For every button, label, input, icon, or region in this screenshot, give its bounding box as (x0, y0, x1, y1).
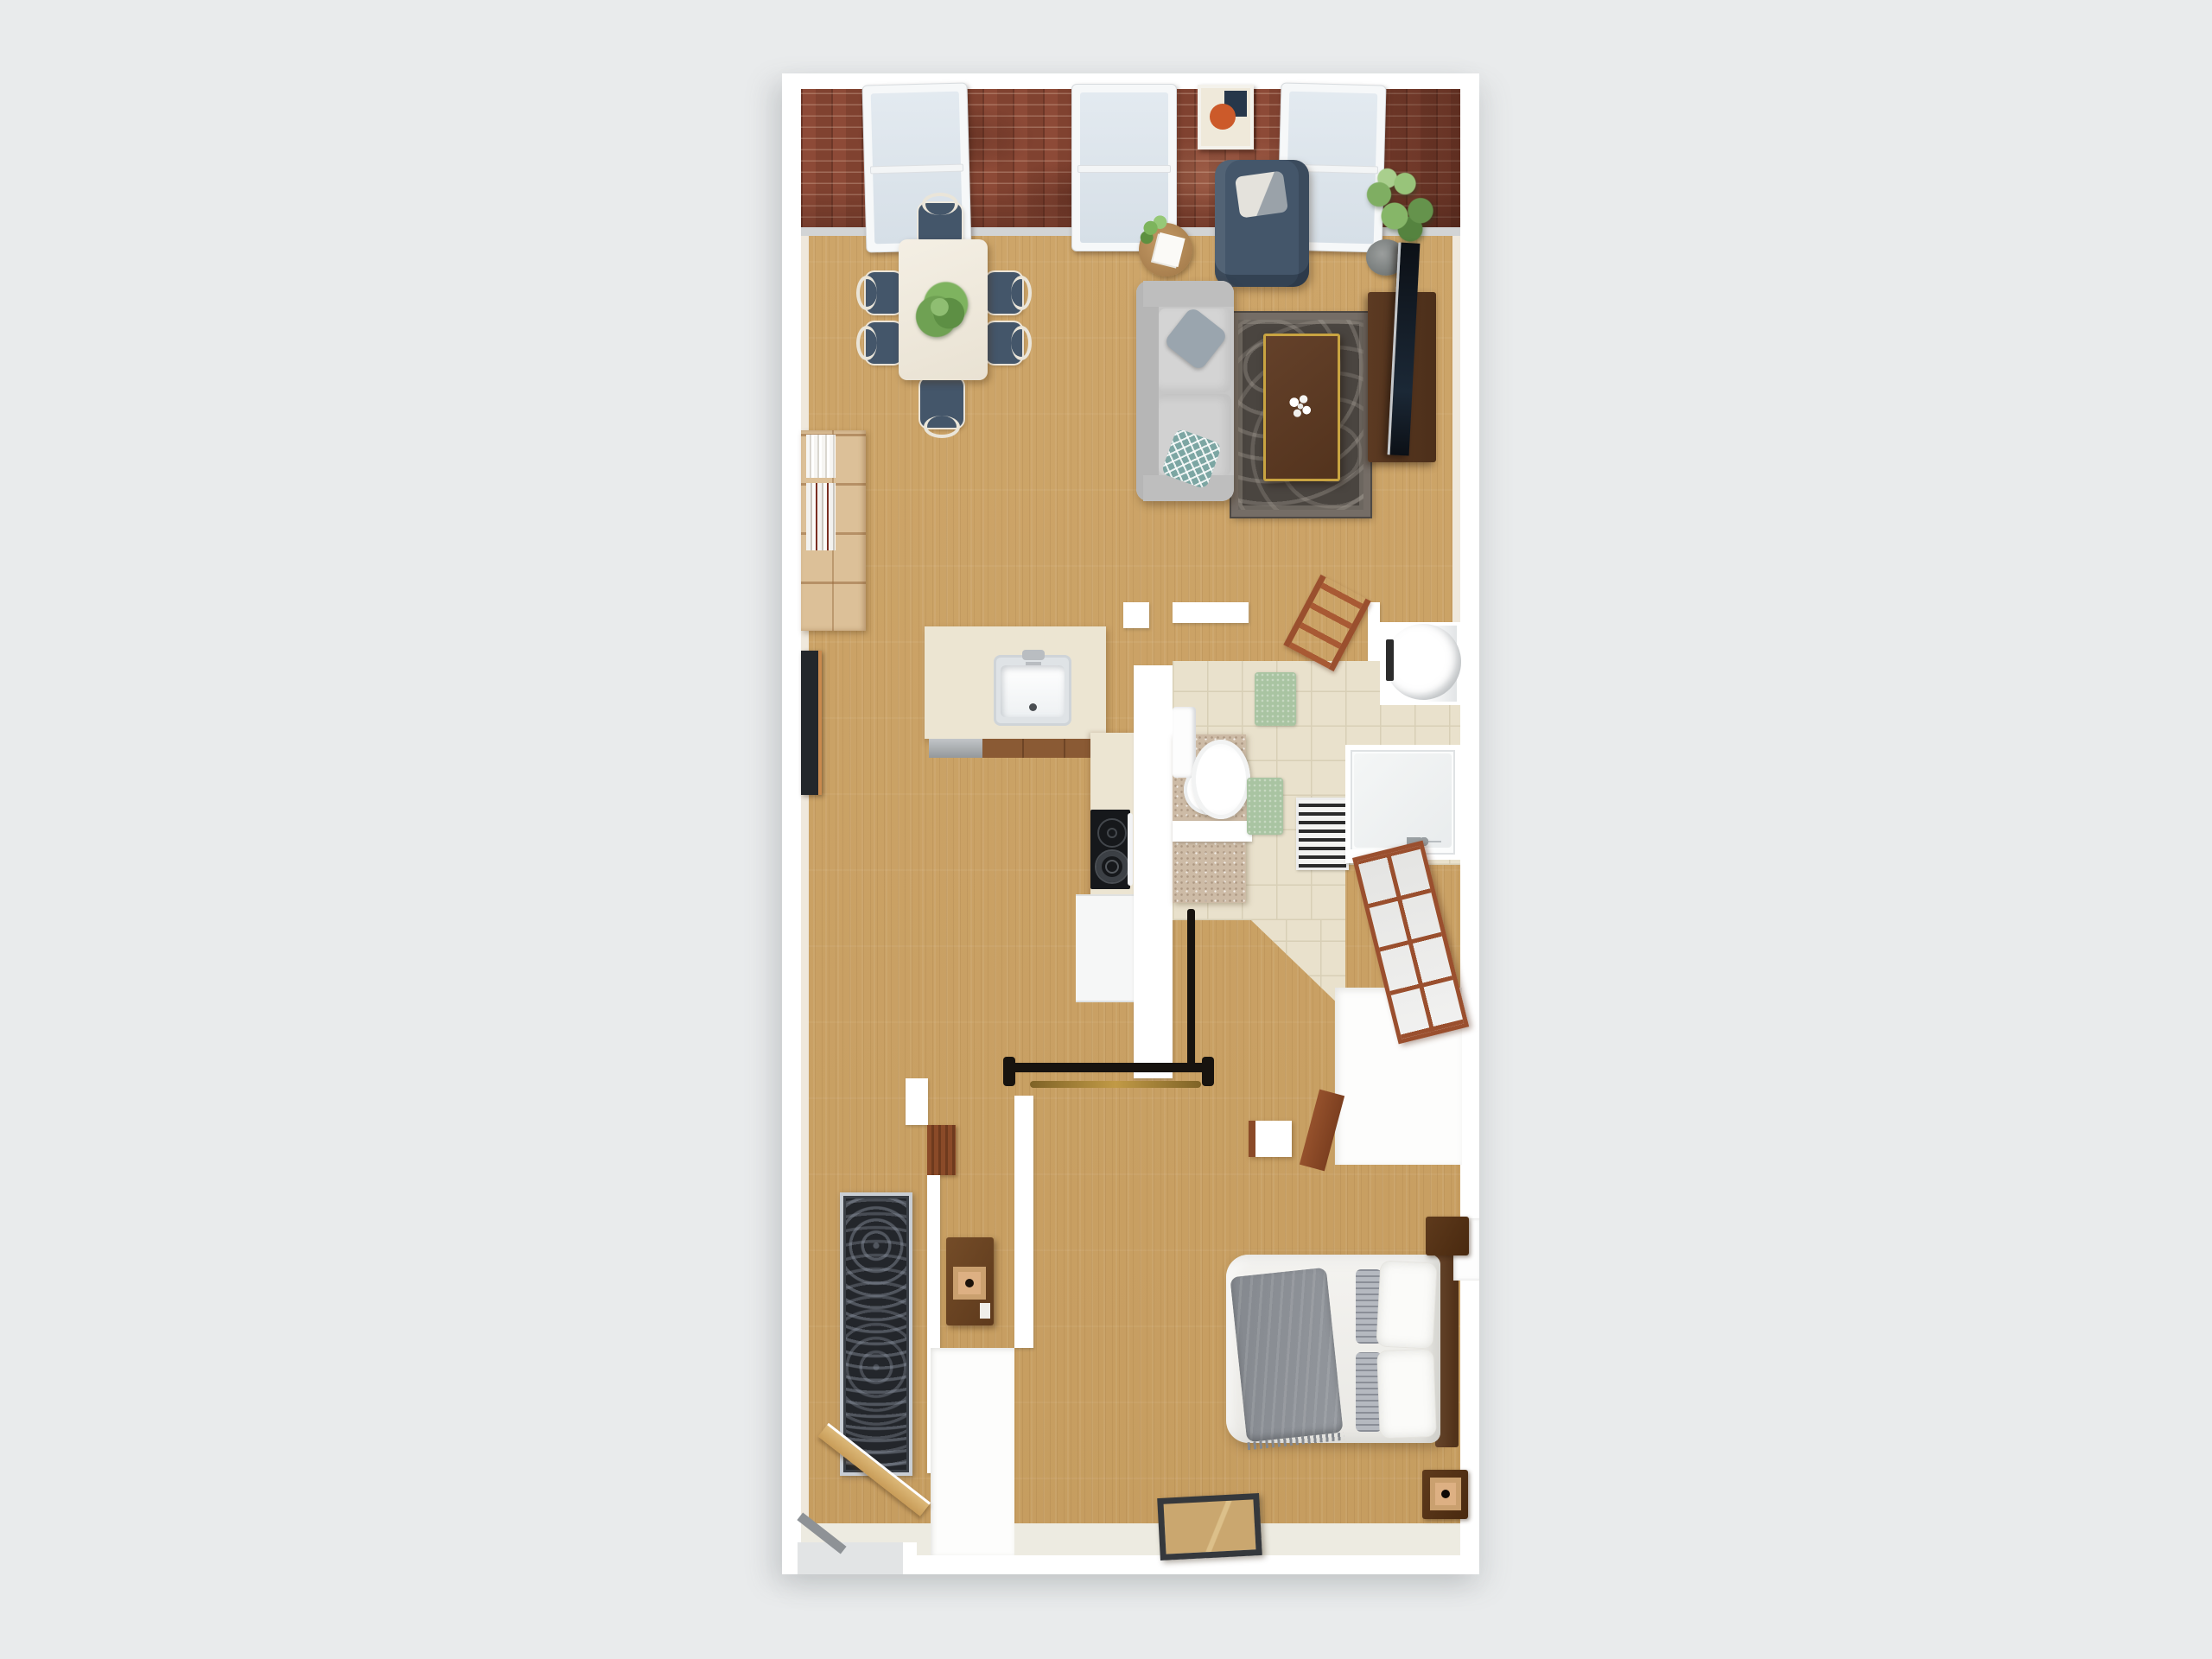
fern-plant (1135, 211, 1173, 249)
dining-chair (920, 378, 963, 428)
entry-closet (931, 1348, 1014, 1555)
water-heater (1385, 624, 1461, 700)
books (806, 483, 836, 550)
table-plant-centerpiece (912, 279, 974, 341)
flower-vase (1285, 391, 1316, 423)
dining-chair (986, 322, 1022, 364)
armchair-pillow (1235, 170, 1288, 218)
burner (1095, 849, 1129, 884)
burner (1097, 818, 1127, 848)
shower-base (1354, 753, 1452, 848)
floor-mirror (1157, 1493, 1262, 1560)
shower (1345, 745, 1460, 860)
sink-drain (1029, 703, 1037, 711)
wall-segment (906, 1078, 928, 1125)
dining-chair (986, 272, 1022, 314)
clothes-rail (1187, 909, 1195, 1066)
wall-segment (1014, 1096, 1033, 1348)
dining-chair (866, 322, 902, 364)
bath-mat (1255, 672, 1296, 726)
bath-mat (1247, 778, 1283, 835)
dining-chair (866, 272, 902, 314)
sofa-armrest (1143, 281, 1234, 307)
wall-segment (1134, 665, 1173, 1078)
window-rail (1077, 165, 1171, 173)
dishwasher-front (929, 739, 982, 758)
kitchen-sink (994, 655, 1071, 726)
hall-console (946, 1237, 994, 1325)
coat-rack-post (1202, 1057, 1214, 1086)
table-lamp (1430, 1478, 1461, 1510)
base-cabinets (982, 739, 1106, 758)
abstract-art (1198, 85, 1254, 149)
runner-rug (840, 1192, 912, 1476)
kitchen-faucet (1022, 650, 1045, 660)
toilet-bowl (1192, 740, 1250, 819)
door-jamb (903, 1542, 917, 1574)
table-lamp (953, 1267, 986, 1300)
wall-segment (1173, 602, 1249, 623)
side-table (1139, 223, 1192, 276)
bed-throw-blanket (1230, 1268, 1343, 1443)
coat-rack-bar (1008, 1063, 1208, 1072)
cooktop (1090, 810, 1130, 889)
striped-bath-rug (1296, 798, 1349, 870)
floorplan (782, 73, 1479, 1574)
dark-wall-art (801, 651, 822, 795)
decor-item (980, 1303, 990, 1319)
oven-handle (1128, 813, 1133, 886)
small-white-table (1249, 1121, 1292, 1157)
coat-rack-post (1003, 1057, 1015, 1086)
wall-segment (1123, 602, 1149, 628)
heater-strap (1386, 639, 1394, 681)
books (806, 435, 836, 478)
bed-pillow-white (1376, 1260, 1437, 1349)
sofa-backrest (1136, 281, 1159, 501)
coffee-table (1263, 334, 1340, 481)
entry-doorway (798, 1542, 906, 1574)
floorplan-canvas (0, 0, 2212, 1659)
appliance-front (1076, 894, 1134, 1002)
wall-segment (1173, 821, 1252, 842)
wall-face-right (1452, 236, 1460, 661)
coat-rack-brass-rail (1030, 1081, 1201, 1088)
bed-pillow-white (1376, 1349, 1437, 1439)
art-shape-orange (1210, 104, 1236, 130)
nightstand (1422, 1470, 1468, 1519)
armchair (1215, 160, 1309, 287)
nightstand (1426, 1217, 1469, 1255)
wall-face-left (801, 236, 809, 1525)
slatted-table (927, 1125, 956, 1175)
